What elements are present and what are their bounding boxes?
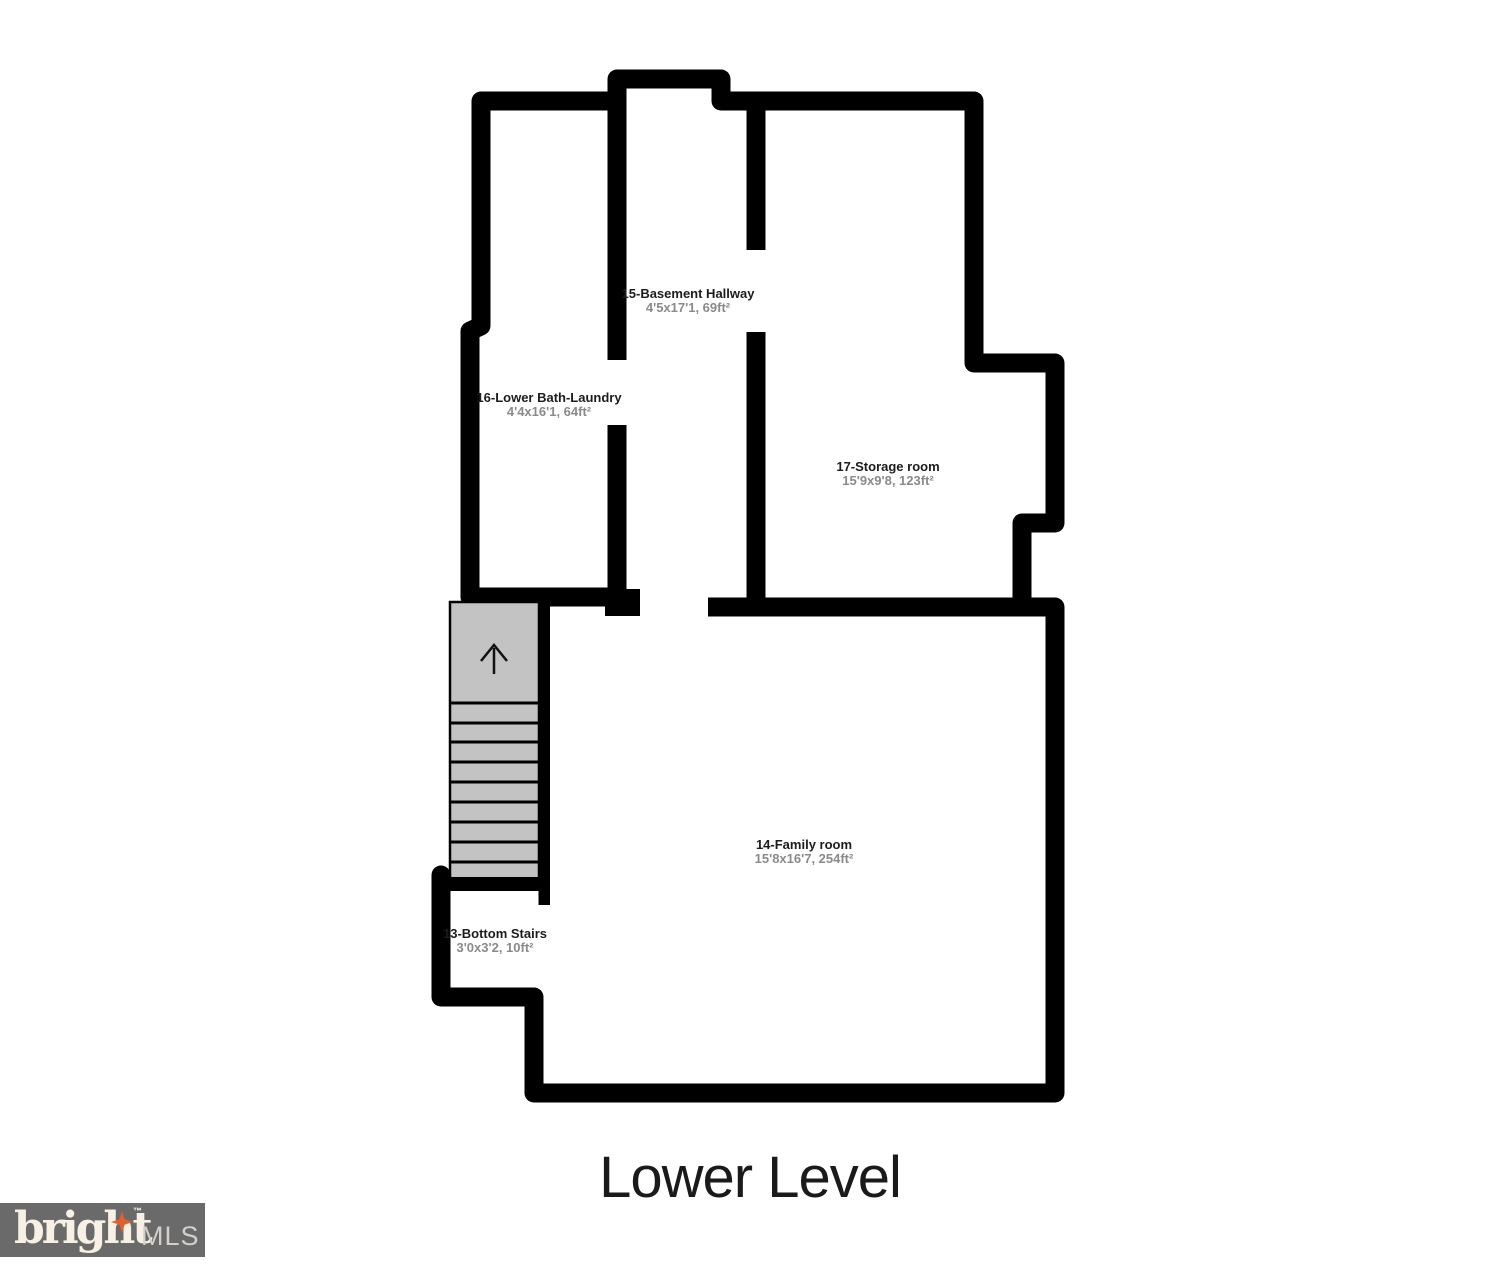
logo-suffix: MLS	[141, 1223, 200, 1250]
floorplan-canvas: 15-Basement Hallway 4'5x17'1, 69ft² 16-L…	[0, 0, 1497, 1265]
room-label-lower-bath-laundry: 16-Lower Bath-Laundry 4'4x16'1, 64ft²	[476, 391, 621, 419]
four-point-star-icon	[111, 1211, 133, 1233]
room-dimensions: 4'5x17'1, 69ft²	[622, 301, 755, 315]
room-dimensions: 3'0x3'2, 10ft²	[443, 941, 547, 955]
floor-level-title: Lower Level	[599, 1146, 901, 1210]
room-name: 15-Basement Hallway	[622, 287, 755, 301]
room-dimensions: 15'8x16'7, 254ft²	[755, 852, 854, 866]
room-label-bottom-stairs: 13-Bottom Stairs 3'0x3'2, 10ft²	[443, 927, 547, 955]
room-label-basement-hallway: 15-Basement Hallway 4'5x17'1, 69ft²	[622, 287, 755, 315]
room-dimensions: 15'9x9'8, 123ft²	[836, 474, 939, 488]
staircase	[448, 601, 550, 905]
room-name: 17-Storage room	[836, 460, 939, 474]
floorplan-drawing	[0, 0, 1497, 1265]
room-name: 14-Family room	[755, 838, 854, 852]
room-label-family-room: 14-Family room 15'8x16'7, 254ft²	[755, 838, 854, 866]
trademark-symbol: ™	[133, 1206, 142, 1216]
room-name: 13-Bottom Stairs	[443, 927, 547, 941]
room-label-storage-room: 17-Storage room 15'9x9'8, 123ft²	[836, 460, 939, 488]
room-dimensions: 4'4x16'1, 64ft²	[476, 405, 621, 419]
brightmls-logo: bright ™ MLS	[0, 1203, 205, 1257]
room-name: 16-Lower Bath-Laundry	[476, 391, 621, 405]
